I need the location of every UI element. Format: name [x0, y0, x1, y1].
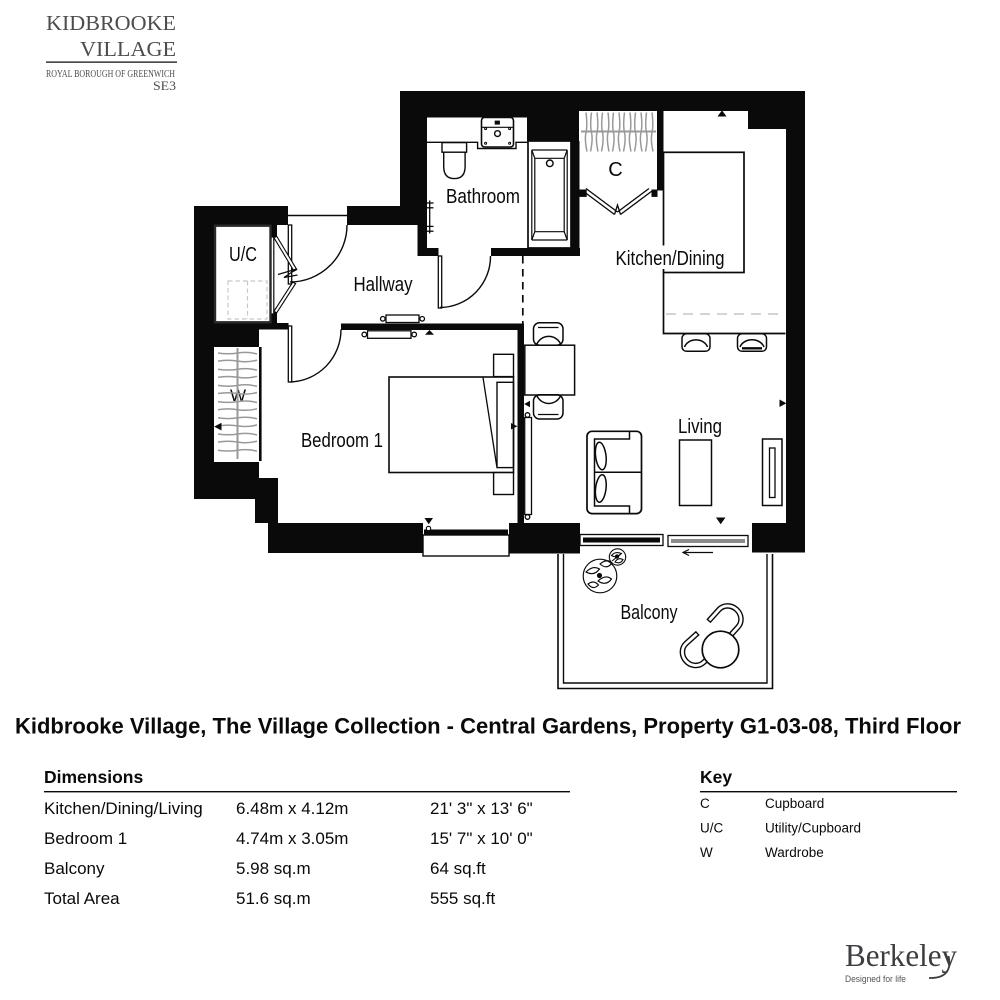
svg-text:W: W [700, 845, 713, 860]
svg-text:KIDBROOKE: KIDBROOKE [46, 11, 176, 35]
svg-text:6.48m x 4.12m: 6.48m x 4.12m [236, 799, 348, 818]
svg-text:C: C [700, 796, 710, 811]
svg-text:15' 7" x 10' 0": 15' 7" x 10' 0" [430, 829, 533, 848]
svg-text:21' 3" x 13' 6": 21' 3" x 13' 6" [430, 799, 533, 818]
svg-text:VILLAGE: VILLAGE [80, 37, 176, 61]
svg-text:C: C [608, 159, 622, 181]
svg-text:Key: Key [700, 767, 732, 787]
svg-text:Dimensions: Dimensions [44, 767, 143, 787]
svg-text:SE3: SE3 [153, 79, 176, 93]
svg-text:Cupboard: Cupboard [765, 796, 824, 811]
svg-text:51.6 sq.m: 51.6 sq.m [236, 889, 311, 908]
svg-text:Bedroom 1: Bedroom 1 [301, 430, 383, 452]
svg-text:Total Area: Total Area [44, 889, 120, 908]
svg-text:Balcony: Balcony [44, 859, 105, 878]
svg-text:Kitchen/Dining/Living: Kitchen/Dining/Living [44, 799, 203, 818]
svg-text:U/C: U/C [229, 244, 257, 266]
svg-text:Utility/Cupboard: Utility/Cupboard [765, 821, 861, 836]
svg-text:Living: Living [678, 416, 722, 438]
svg-text:U/C: U/C [700, 821, 724, 836]
svg-text:5.98 sq.m: 5.98 sq.m [236, 859, 311, 878]
svg-text:Kitchen/Dining: Kitchen/Dining [616, 248, 725, 270]
svg-text:Designed for life: Designed for life [845, 974, 906, 984]
svg-text:555 sq.ft: 555 sq.ft [430, 889, 495, 908]
svg-text:Hallway: Hallway [354, 274, 413, 296]
svg-text:Berkeley: Berkeley [845, 937, 957, 973]
svg-text:64 sq.ft: 64 sq.ft [430, 859, 486, 878]
svg-text:Kidbrooke Village, The Village: Kidbrooke Village, The Village Collectio… [15, 714, 961, 739]
svg-text:Wardrobe: Wardrobe [765, 845, 824, 860]
svg-text:4.74m x 3.05m: 4.74m x 3.05m [236, 829, 348, 848]
svg-text:Balcony: Balcony [621, 602, 678, 624]
svg-text:Bedroom 1: Bedroom 1 [44, 829, 127, 848]
svg-text:Bathroom: Bathroom [446, 186, 520, 208]
